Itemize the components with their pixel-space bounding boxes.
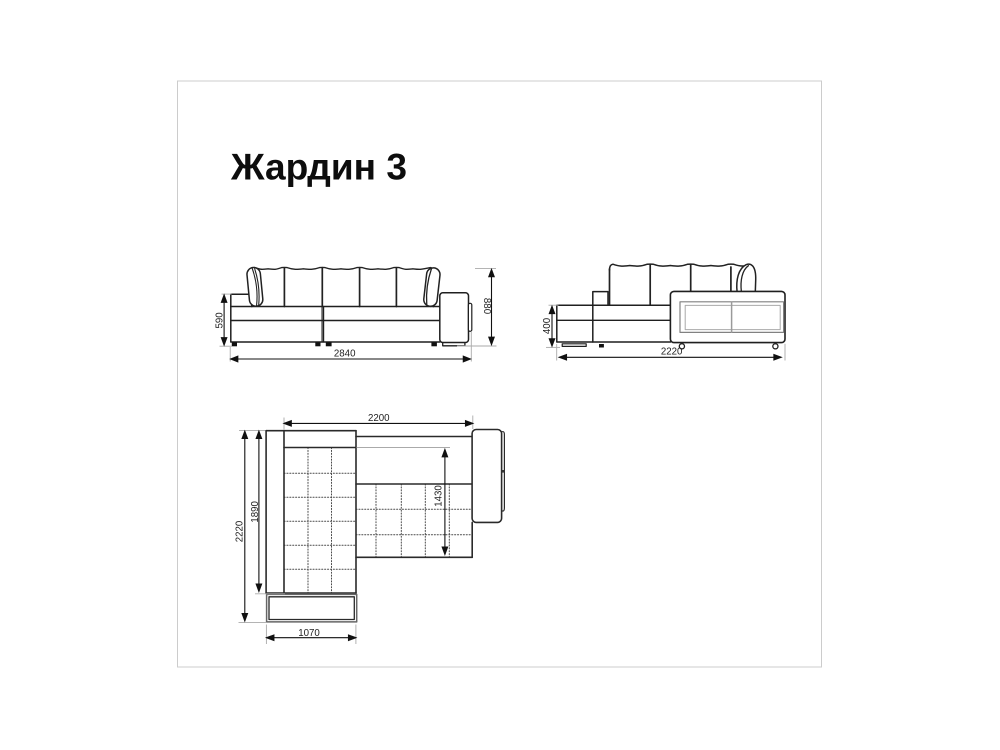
svg-text:400: 400 (542, 317, 553, 334)
svg-text:1430: 1430 (433, 485, 444, 507)
svg-text:2200: 2200 (368, 413, 390, 424)
svg-text:2220: 2220 (235, 520, 246, 542)
svg-text:1070: 1070 (298, 628, 320, 639)
svg-text:880: 880 (481, 298, 492, 315)
svg-text:590: 590 (214, 312, 225, 329)
svg-text:Жардин 3: Жардин 3 (230, 146, 407, 188)
svg-text:2840: 2840 (334, 349, 356, 360)
svg-text:2220: 2220 (661, 347, 683, 358)
svg-text:1890: 1890 (250, 501, 261, 523)
